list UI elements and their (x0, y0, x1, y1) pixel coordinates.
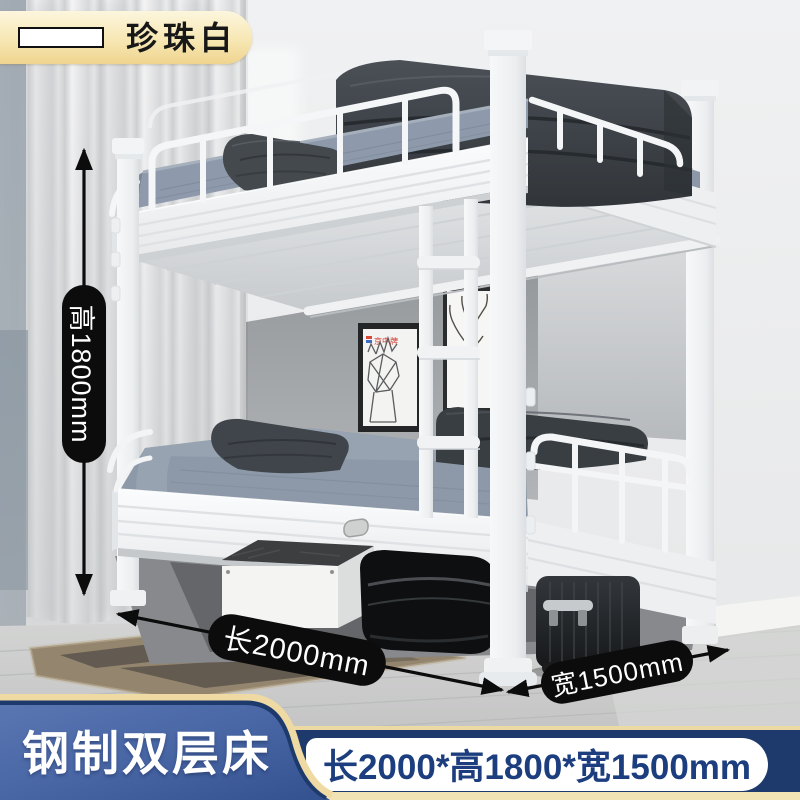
suitcase-handle (543, 600, 593, 611)
brand-flag-red (366, 336, 372, 339)
ladder-rung (417, 256, 480, 269)
color-swatch-badge: 珍珠白 (0, 11, 252, 64)
black-trunk (360, 550, 496, 654)
height-dimension-label: 高1800mm (62, 285, 106, 463)
wall-art-deer: 京中牌 (358, 323, 422, 432)
product-image: 京中牌 (0, 0, 800, 800)
ladder-rung (417, 436, 480, 449)
size-spec-pill: 长2000*高1800*宽1500mm (306, 738, 768, 791)
color-name-label: 珍珠白 (126, 22, 237, 54)
color-swatch (18, 27, 104, 48)
size-spec-text: 长2000*高1800*宽1500mm (323, 739, 751, 790)
box-handle (344, 518, 368, 537)
product-name: 钢制双层床 (10, 708, 284, 790)
brand-flag-blue (366, 340, 372, 343)
product-photo: 京中牌 (0, 0, 800, 730)
ladder-rung (417, 346, 480, 359)
